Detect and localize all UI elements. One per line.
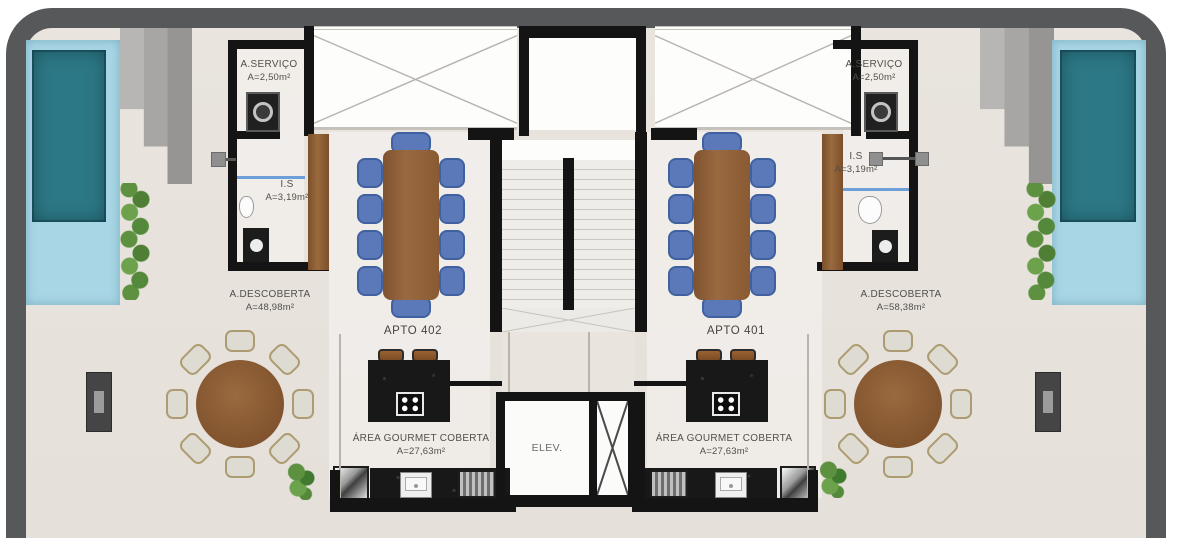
sink-bowl — [250, 239, 263, 252]
wall-elev-divider — [589, 401, 597, 495]
room-area: A=58,38m² — [860, 301, 941, 314]
wall-core-left — [490, 132, 502, 332]
corridor-jamb-right — [588, 332, 590, 392]
section-marker-left — [211, 152, 226, 167]
toilet-right — [858, 196, 882, 224]
tv-screen — [94, 391, 104, 413]
dining-chair — [750, 230, 776, 260]
terrace-dining-right — [823, 329, 973, 479]
terrace-label-left: A.DESCOBERTA A=48,98m² — [229, 288, 310, 314]
wall-top-center — [519, 26, 646, 38]
room-name: ÁREA GOURMET COBERTA — [353, 432, 490, 445]
terrace-label-right: A.DESCOBERTA A=58,38m² — [860, 288, 941, 314]
elevator-label: ELEV. — [532, 442, 563, 455]
washer-drum — [253, 102, 273, 122]
void-left — [314, 26, 517, 130]
wall-bottom-left — [330, 498, 516, 512]
terrace-chair — [292, 389, 314, 419]
cooktop — [712, 392, 740, 416]
terrace-chair — [225, 330, 255, 352]
wall-void-left-pier — [519, 26, 529, 136]
wall-service-left-outer — [228, 40, 237, 271]
round-table-right — [854, 360, 942, 448]
hedge-left — [120, 183, 150, 300]
room-name: A.SERVIÇO — [846, 58, 903, 71]
dining-chair — [668, 230, 694, 260]
wall-service-right-divider — [866, 131, 918, 139]
grill-grate-left — [458, 470, 496, 498]
room-area: A=27,63m² — [353, 445, 490, 458]
marker-line-right — [883, 157, 915, 160]
terrace-chair — [950, 389, 972, 419]
apto-401-label: APTO 401 — [707, 325, 765, 338]
sink-bowl — [879, 240, 892, 253]
stair-bottom-landing — [502, 308, 635, 332]
toilet-left — [239, 196, 254, 218]
hedge-right — [1026, 183, 1056, 300]
terrace-chair — [924, 430, 961, 467]
wall-void-right-pier — [636, 26, 646, 136]
wall-core-top-right — [651, 128, 697, 140]
terrace-chair — [924, 341, 961, 378]
dining-chair — [439, 230, 465, 260]
terrace-chair — [177, 430, 214, 467]
wall-elev-bottom — [496, 495, 645, 507]
floor-plan-canvas: ELEV. — [0, 0, 1200, 551]
dining-chair — [357, 158, 383, 188]
glass-partition-right — [843, 188, 909, 191]
terrace-chair — [883, 330, 913, 352]
dining-chair — [668, 194, 694, 224]
terrace-dining-left — [165, 329, 315, 479]
wall-core-right — [635, 132, 647, 332]
dining-chair — [357, 266, 383, 296]
dining-chair — [439, 266, 465, 296]
room-area: A=2,50m² — [846, 71, 903, 84]
stair-flight-right — [574, 160, 635, 308]
room-area: A=48,98m² — [229, 301, 310, 314]
tv-panel-left — [86, 372, 112, 432]
terrace-chair — [225, 456, 255, 478]
terrace-chair — [824, 389, 846, 419]
sink-cabinet-right — [872, 230, 898, 262]
elevator-shaft — [597, 401, 628, 495]
tv-screen — [1043, 391, 1053, 413]
round-table-left — [196, 360, 284, 448]
terrace-chair — [166, 389, 188, 419]
gourmet-label-left: ÁREA GOURMET COBERTA A=27,63m² — [353, 432, 490, 458]
dining-chair — [750, 158, 776, 188]
dining-chair — [439, 158, 465, 188]
washing-machine-left — [246, 92, 280, 132]
stair-flight-left — [502, 160, 563, 308]
void-center-strip — [529, 38, 636, 130]
tv-panel-right — [1035, 372, 1061, 432]
marker-line-left — [226, 158, 236, 161]
section-marker-right-b — [915, 152, 929, 166]
room-name: I.S — [834, 150, 877, 163]
void-right — [655, 26, 851, 130]
is-label-right: I.S A=3,19m² — [834, 150, 877, 176]
dining-chair — [439, 194, 465, 224]
gourmet-sink-right — [715, 472, 747, 498]
room-area: A=2,50m² — [241, 71, 298, 84]
room-area: A=3,19m² — [834, 163, 877, 176]
dining-chair — [357, 194, 383, 224]
room-name: ÁREA GOURMET COBERTA — [656, 432, 793, 445]
wall-elev-top — [496, 392, 645, 401]
dining-chair — [750, 194, 776, 224]
grill-grate-right — [650, 470, 688, 498]
terrace-chair — [266, 341, 303, 378]
wall-service-left-top — [228, 40, 313, 49]
apto-402-label: APTO 402 — [384, 325, 442, 338]
service-label-left: A.SERVIÇO A=2,50m² — [241, 58, 298, 84]
is-label-left: I.S A=3,19m² — [265, 178, 308, 204]
sink-cabinet-left — [243, 228, 269, 262]
service-label-right: A.SERVIÇO A=2,50m² — [846, 58, 903, 84]
wall-bottom-right — [632, 498, 818, 512]
terrace-chair — [883, 456, 913, 478]
room-name: A.DESCOBERTA — [860, 288, 941, 301]
room-name: I.S — [265, 178, 308, 191]
dining-chair — [357, 230, 383, 260]
wall-island-left — [450, 381, 502, 386]
wall-island-right — [634, 381, 686, 386]
pool-left — [32, 50, 106, 222]
terrace-chair — [266, 430, 303, 467]
gourmet-sink-left — [400, 472, 432, 498]
dining-chair — [668, 158, 694, 188]
room-name: A.SERVIÇO — [241, 58, 298, 71]
wall-elev-right — [628, 392, 645, 507]
wall-elev-left — [496, 392, 505, 507]
dining-chair — [750, 266, 776, 296]
room-area: A=27,63m² — [656, 445, 793, 458]
pool-right — [1060, 50, 1136, 222]
core-corridor — [502, 332, 635, 392]
washing-machine-right — [864, 92, 898, 132]
gourmet-label-right: ÁREA GOURMET COBERTA A=27,63m² — [656, 432, 793, 458]
dining-chair — [668, 266, 694, 296]
washer-drum — [871, 102, 891, 122]
wall-service-left-divider — [228, 131, 280, 139]
dining-table-apto-401 — [694, 150, 750, 300]
corridor-jamb-left — [508, 332, 510, 392]
cooktop — [396, 392, 424, 416]
wood-panel-left — [308, 134, 329, 270]
room-area: A=3,19m² — [265, 191, 308, 204]
room-name: A.DESCOBERTA — [229, 288, 310, 301]
terrace-chair — [835, 430, 872, 467]
wall-service-right-top — [833, 40, 918, 49]
stair-top-landing — [502, 140, 635, 160]
dining-table-apto-402 — [383, 150, 439, 300]
stair-divider-wall — [563, 158, 574, 310]
